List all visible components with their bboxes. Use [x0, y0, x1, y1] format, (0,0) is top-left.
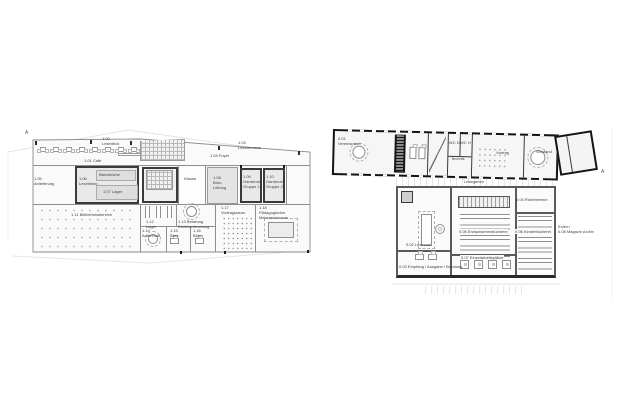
conference-table — [268, 222, 294, 238]
service-desk — [415, 254, 424, 260]
wall — [459, 134, 461, 156]
floor-plan-sheet: A1.01 Café1.02 Lesedeck1.03 Leseterrasse… — [0, 0, 625, 400]
column — [35, 141, 37, 145]
room-label: 0.03 Empfang / Ausgabe / Beratung — [399, 264, 462, 269]
door-tick — [240, 165, 242, 168]
pergola-lines — [425, 286, 525, 294]
wall — [176, 204, 177, 226]
wall — [178, 166, 179, 204]
room-klause — [180, 167, 205, 204]
storage-shelves — [145, 206, 172, 218]
wing-annex — [554, 130, 598, 175]
terrace-table — [53, 147, 59, 152]
door-tick — [224, 251, 226, 254]
column — [130, 141, 132, 145]
study-carrel — [488, 260, 497, 269]
round-table — [186, 206, 197, 217]
room-label: 0.07 Einzelarbeitsplätze — [460, 255, 504, 260]
column — [218, 146, 220, 150]
room-label: 1.01 Café — [84, 158, 101, 163]
book-stacks — [518, 216, 552, 272]
room-label: 0.01 Vereinsraum — [338, 136, 360, 146]
stair-core — [394, 135, 406, 173]
section-marker: A — [25, 130, 28, 136]
room-label: WC D — [449, 140, 460, 145]
column — [90, 140, 92, 144]
room-label: 1.15 Büro — [170, 228, 178, 238]
stair-hatch — [458, 196, 510, 208]
wall — [255, 204, 256, 252]
service-desk — [428, 254, 437, 260]
office-desk — [195, 238, 204, 244]
round-table — [352, 145, 365, 158]
room-label: 0.04 Ruhebereich — [516, 197, 548, 202]
room-label: 1.14 Aufenthalt — [142, 228, 160, 238]
room-label: 0.05 Erwachsenenbücherei — [458, 229, 508, 234]
office-desk — [170, 238, 179, 244]
column — [298, 151, 300, 155]
wall — [450, 188, 452, 275]
wall — [398, 250, 450, 252]
room-label: 1.17 Vortragsraum — [221, 205, 245, 215]
room-label: 1.05 Anlieferung — [34, 176, 54, 186]
room-label: 0.02 Lesesaal — [406, 242, 431, 247]
room-label: Extern 0.08 Magazin Archiv — [558, 224, 594, 234]
wall — [205, 166, 206, 204]
room-label: 1.07 Lager — [103, 189, 122, 194]
terrace-table — [131, 147, 137, 152]
room-label: 1.18 Pädagogischer Mehrzweckraum — [259, 205, 288, 220]
spiral-feature — [435, 224, 445, 234]
wall — [515, 212, 556, 214]
room-label: Bistroküche — [99, 172, 120, 177]
stair-hatch — [140, 139, 185, 161]
study-carrel — [474, 260, 483, 269]
door-tick — [180, 251, 182, 254]
room-label: Klause — [184, 176, 196, 181]
wall — [190, 226, 191, 252]
terrace-table — [92, 147, 98, 152]
core-stair-hatch — [146, 170, 173, 190]
book-stacks — [460, 214, 510, 257]
lecture-chair-rows — [222, 216, 252, 249]
room-label: 1.08 Büro Leitung — [213, 175, 226, 190]
room-label: 0.06 Kinderbücherei — [514, 229, 552, 234]
terrace-table — [66, 147, 72, 152]
section-marker: A — [601, 169, 604, 175]
room-label: 1.09 Garderobe Gruppe 1 — [243, 174, 262, 189]
room-label: 1.02 Lesedeck — [102, 136, 119, 146]
wall — [140, 204, 141, 252]
slanted-wall — [429, 135, 446, 173]
room-label: 1.11 Bibliotheksbereich — [70, 212, 113, 217]
table — [418, 147, 425, 159]
door-tick — [307, 250, 309, 253]
wall — [166, 226, 167, 252]
room-label: WC H — [460, 140, 471, 145]
room-label: 1.04 Foyer — [210, 153, 229, 158]
wall — [523, 136, 525, 178]
room-label: Lesegarten — [464, 179, 484, 184]
terrace-table — [79, 147, 85, 152]
table — [409, 147, 416, 159]
historic-wing — [332, 129, 559, 181]
study-carrel — [502, 260, 511, 269]
elevator-shaft — [401, 191, 413, 203]
wall — [215, 204, 216, 252]
room-label: 1.10 Garderobe Gruppe 2 — [266, 174, 285, 189]
terrace-table — [40, 147, 46, 152]
room-label: Vortrag — [496, 150, 509, 155]
door-tick — [283, 165, 285, 168]
room-label: 1.03 Leseterrasse — [238, 140, 261, 150]
room-label: Vorstand — [536, 149, 552, 154]
terrace-table — [105, 147, 111, 152]
terrace-table — [118, 147, 124, 152]
wall — [286, 166, 287, 204]
room-label: Technik — [451, 156, 465, 161]
room-label: 1.16 Büro — [193, 228, 201, 238]
room-label: 1.06 Lesebistro — [79, 176, 97, 186]
wall — [566, 136, 573, 172]
